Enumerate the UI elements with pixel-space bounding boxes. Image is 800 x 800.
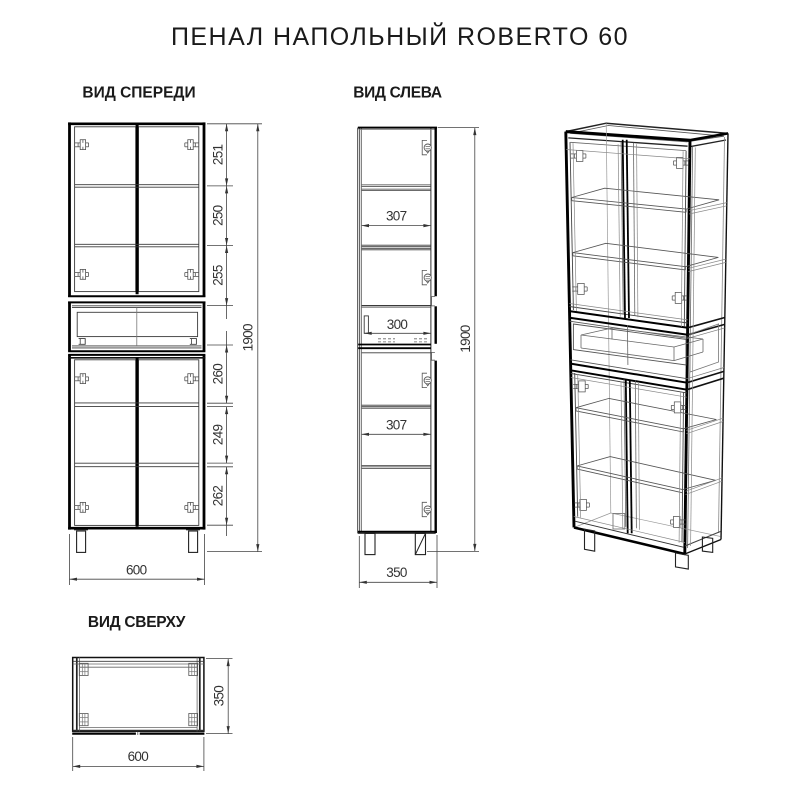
svg-text:250: 250 [211,205,226,226]
svg-text:307: 307 [386,209,407,224]
svg-text:600: 600 [128,749,149,764]
svg-text:600: 600 [126,563,147,578]
svg-text:307: 307 [386,417,407,432]
svg-text:1900: 1900 [458,325,473,352]
svg-text:350: 350 [386,565,407,580]
svg-text:350: 350 [211,686,226,707]
svg-text:ПЕНАЛ НАПОЛЬНЫЙ ROBERTO 60: ПЕНАЛ НАПОЛЬНЫЙ ROBERTO 60 [171,21,629,51]
svg-text:251: 251 [211,144,226,165]
svg-text:ВИД СВЕРХУ: ВИД СВЕРХУ [88,614,186,631]
svg-text:255: 255 [211,265,226,286]
svg-text:ВИД СЛЕВА: ВИД СЛЕВА [353,85,442,102]
svg-text:300: 300 [387,317,408,332]
svg-text:249: 249 [211,424,226,445]
svg-text:260: 260 [211,364,226,385]
svg-text:ВИД СПЕРЕДИ: ВИД СПЕРЕДИ [82,85,195,102]
svg-text:1900: 1900 [241,324,256,351]
svg-text:262: 262 [211,486,226,507]
